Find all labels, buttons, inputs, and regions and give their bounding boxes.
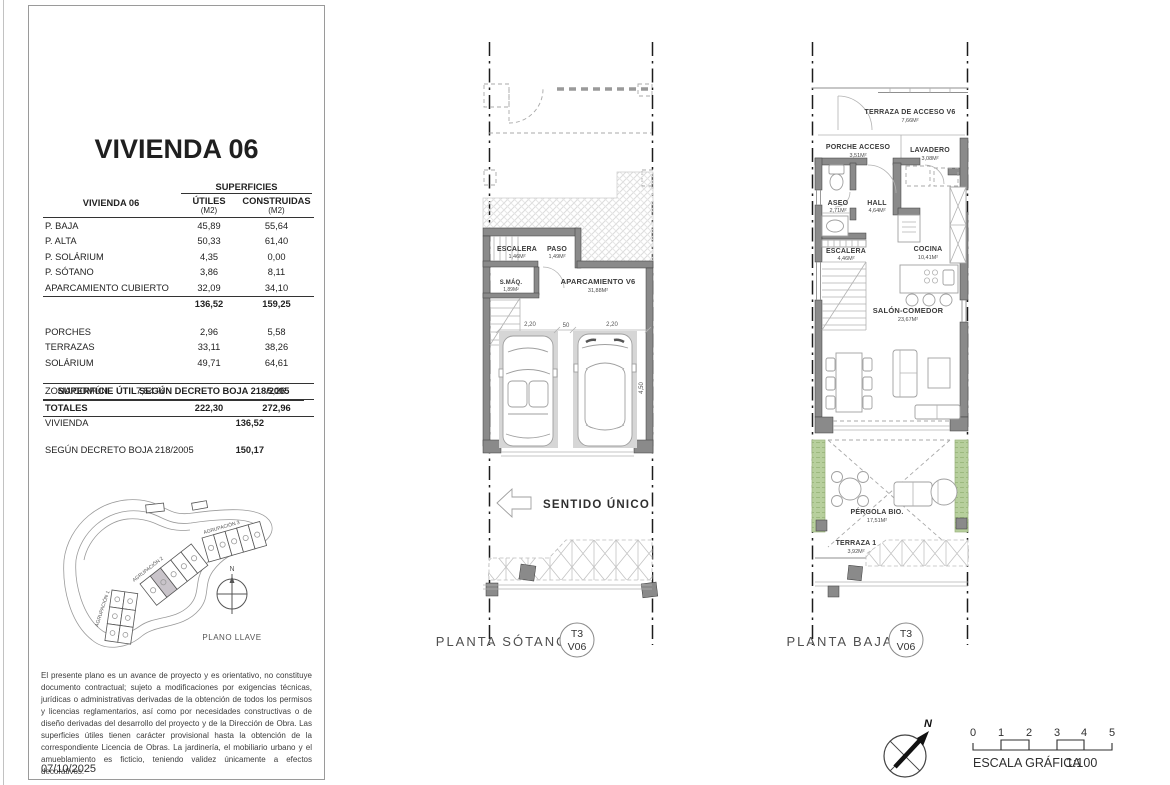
svg-text:3,51M²: 3,51M²	[849, 153, 866, 159]
svg-text:7,66M²: 7,66M²	[901, 118, 918, 124]
dim-depth: 4,50	[639, 382, 645, 394]
car-sedan	[574, 334, 636, 446]
sotano-gate-dashed	[484, 84, 653, 186]
svg-text:3,08M²: 3,08M²	[921, 156, 938, 162]
dim-gap: 50	[563, 323, 570, 329]
scale-ratio: 1:100	[1066, 756, 1097, 770]
room-label-terraza-acceso: TERRAZA DE ACCESO V6	[865, 109, 956, 116]
room-label-aseo: ASEO	[828, 200, 849, 207]
graphic-scale: 0 1 2 3 4 5 ESCALA GRÁFICA 1:100	[970, 727, 1115, 770]
floor-plans-canvas: SENTIDO ÚNICO ESCALERA 1,46M² PASO 1,49M…	[0, 0, 1170, 785]
plan-sotano-caption: PLANTA SÓTANO	[436, 634, 568, 649]
room-label-escalera: ESCALERA	[497, 246, 537, 253]
room-label-escalera: ESCALERA	[826, 248, 866, 255]
plan-sheet: VIVIENDA 06 VIVIENDA 06 SUPERFICIES ÚTIL…	[0, 0, 1170, 785]
room-label-pergola: PÉRGOLA BIO.	[850, 507, 903, 516]
svg-text:T3: T3	[571, 628, 583, 640]
svg-text:17,51M²: 17,51M²	[867, 518, 887, 524]
plan-sotano: SENTIDO ÚNICO ESCALERA 1,46M² PASO 1,49M…	[436, 42, 658, 657]
svg-text:T3: T3	[900, 628, 912, 640]
room-label-terraza1: TERRAZA 1	[836, 540, 877, 547]
room-label-aparcamiento: APARCAMIENTO V6	[561, 277, 636, 286]
svg-text:10,41M²: 10,41M²	[918, 255, 938, 261]
room-label-cocina: COCINA	[914, 246, 943, 253]
car-convertible	[499, 336, 557, 446]
svg-text:31,88M²: 31,88M²	[588, 288, 608, 294]
svg-text:V06: V06	[897, 641, 916, 653]
svg-text:1,46M²: 1,46M²	[508, 254, 525, 260]
plan-baja-caption: PLANTA BAJA	[786, 634, 893, 649]
room-label-salon: SALÓN-COMEDOR	[873, 306, 944, 315]
svg-text:2,71M²: 2,71M²	[829, 208, 846, 214]
svg-text:4: 4	[1081, 727, 1087, 739]
room-label-porche: PORCHE ACCESO	[826, 144, 891, 151]
svg-text:1,49M²: 1,49M²	[548, 254, 565, 260]
plan-sotano-badge: T3 V06	[560, 623, 594, 657]
sentido-unico-label: SENTIDO ÚNICO	[543, 498, 650, 511]
svg-text:3: 3	[1054, 727, 1060, 739]
plan-baja-badge: T3 V06	[889, 623, 923, 657]
washbasin-fixture	[822, 216, 848, 236]
room-label-paso: PASO	[547, 246, 567, 253]
pier-block	[641, 582, 658, 598]
sofa-set	[893, 350, 960, 419]
room-label-hall: HALL	[867, 200, 887, 207]
svg-text:23,67M²: 23,67M²	[898, 317, 918, 323]
entry-door-arc	[868, 165, 896, 193]
north-label: N	[924, 718, 933, 730]
pier-block	[519, 564, 536, 581]
pergola-zone	[812, 440, 968, 547]
scale-bar	[973, 740, 1112, 750]
svg-text:3,92M²: 3,92M²	[847, 549, 864, 555]
terraza-railing-band	[866, 540, 968, 566]
svg-text:0: 0	[970, 727, 976, 739]
dining-set	[826, 353, 872, 412]
room-label-lavadero: LAVADERO	[910, 147, 950, 154]
pier-block	[847, 565, 862, 580]
one-way-arrow-icon	[497, 489, 531, 517]
svg-text:5: 5	[1109, 727, 1115, 739]
dim-bay1: 2,20	[524, 322, 536, 328]
plan-baja: TERRAZA DE ACCESO V6 7,66M² PORCHE ACCES…	[786, 42, 968, 657]
svg-text:V06: V06	[568, 641, 587, 653]
dim-bay2: 2,20	[606, 322, 618, 328]
svg-text:1,89M²: 1,89M²	[503, 287, 519, 293]
toilet-fixture	[829, 165, 844, 190]
svg-text:4,46M²: 4,46M²	[837, 256, 854, 262]
north-compass-icon: N	[884, 718, 933, 777]
svg-text:2: 2	[1026, 727, 1032, 739]
svg-text:1: 1	[998, 727, 1004, 739]
pier-block	[828, 586, 839, 597]
room-label-smaq: S.MÁQ.	[500, 279, 523, 286]
retaining-wall-band	[489, 540, 652, 580]
lavadero-appliance	[906, 166, 930, 186]
svg-text:4,64M²: 4,64M²	[868, 208, 885, 214]
